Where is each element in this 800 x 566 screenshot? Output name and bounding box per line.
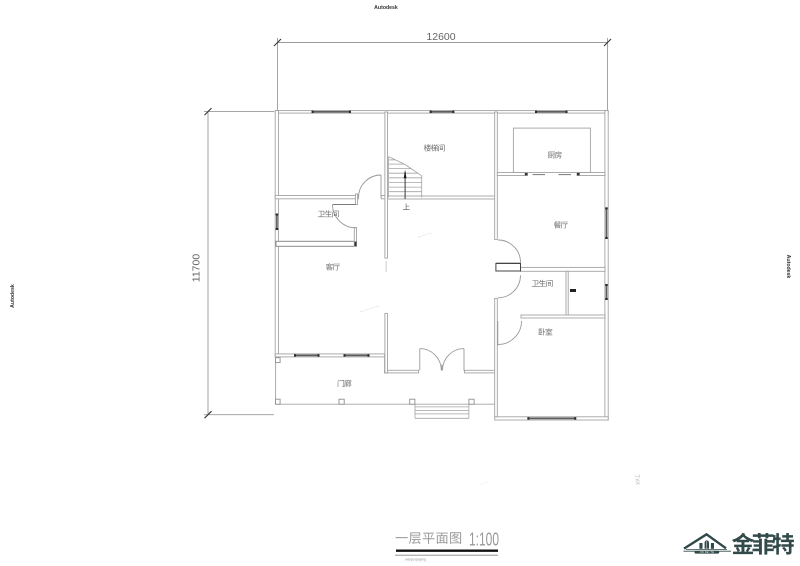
svg-text:Autodesk: Autodesk (374, 5, 398, 11)
svg-text:Autodesk: Autodesk (785, 255, 791, 279)
svg-text:1:100: 1:100 (469, 530, 499, 550)
svg-text:wanjunjiaying: wanjunjiaying (405, 558, 426, 562)
svg-text:11700: 11700 (191, 254, 203, 283)
svg-text:12600: 12600 (426, 31, 455, 43)
svg-text:Autodesk: Autodesk (10, 284, 16, 308)
svg-text:JIN FEI TE: JIN FEI TE (699, 551, 714, 554)
